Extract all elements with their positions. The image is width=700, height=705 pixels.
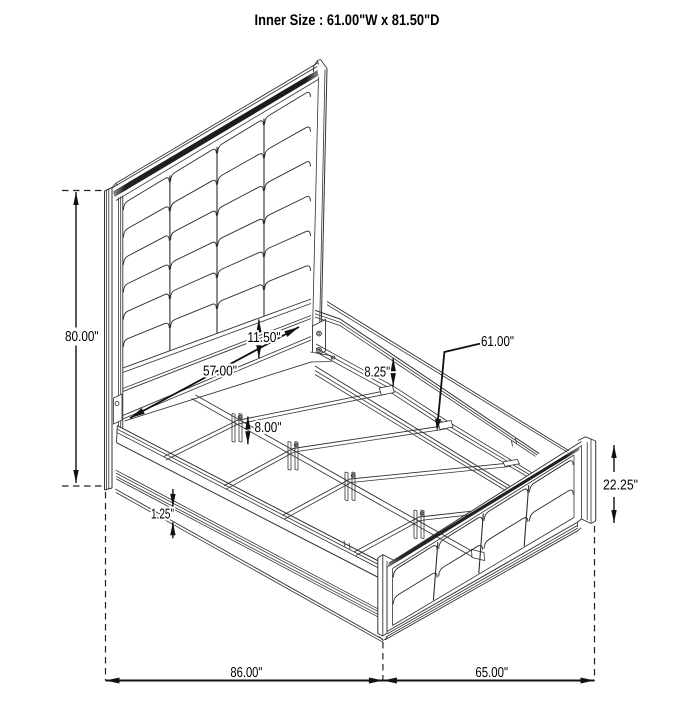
svg-text:80.00": 80.00" <box>65 329 99 345</box>
svg-text:1.25": 1.25" <box>151 506 174 522</box>
svg-text:Inner Size : 61.00"W x 81.50"D: Inner Size : 61.00"W x 81.50"D <box>255 12 440 29</box>
svg-text:8.25": 8.25" <box>364 364 390 380</box>
svg-text:8.00": 8.00" <box>255 420 282 436</box>
svg-text:57.00": 57.00" <box>203 363 237 379</box>
svg-text:86.00": 86.00" <box>230 665 262 681</box>
svg-text:22.25": 22.25" <box>603 478 638 494</box>
svg-text:61.00": 61.00" <box>481 334 514 350</box>
svg-text:65.00": 65.00" <box>475 665 508 681</box>
svg-text:11.50": 11.50" <box>247 330 280 346</box>
